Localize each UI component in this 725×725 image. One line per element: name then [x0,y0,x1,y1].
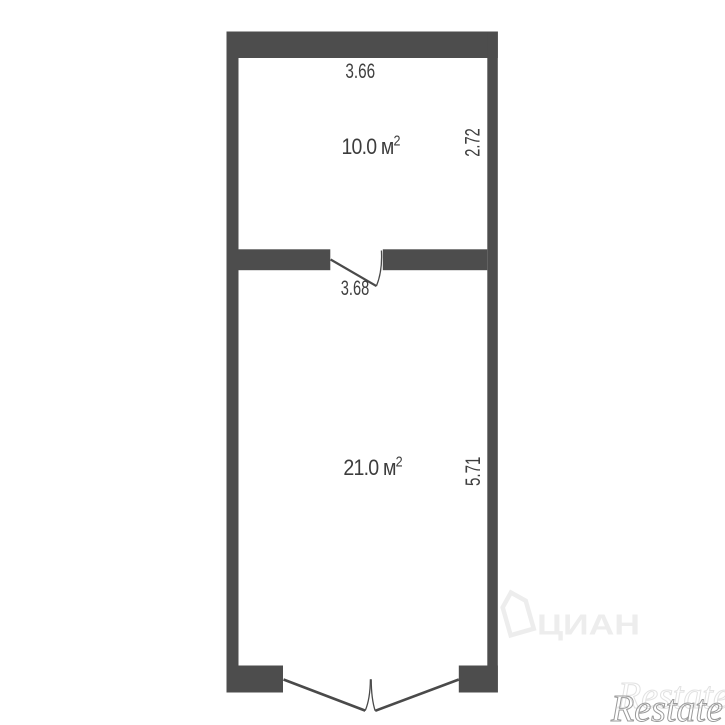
svg-text:3.66: 3.66 [345,59,375,83]
svg-text:10.0 м2: 10.0 м2 [342,134,401,160]
svg-text:5.71: 5.71 [461,457,485,486]
svg-text:21.0 м2: 21.0 м2 [343,455,402,481]
svg-text:3.68: 3.68 [341,276,370,300]
svg-text:2.72: 2.72 [461,128,485,157]
svg-text:ЦИАН: ЦИАН [537,610,640,642]
svg-text:Restate: Restate [610,688,723,725]
